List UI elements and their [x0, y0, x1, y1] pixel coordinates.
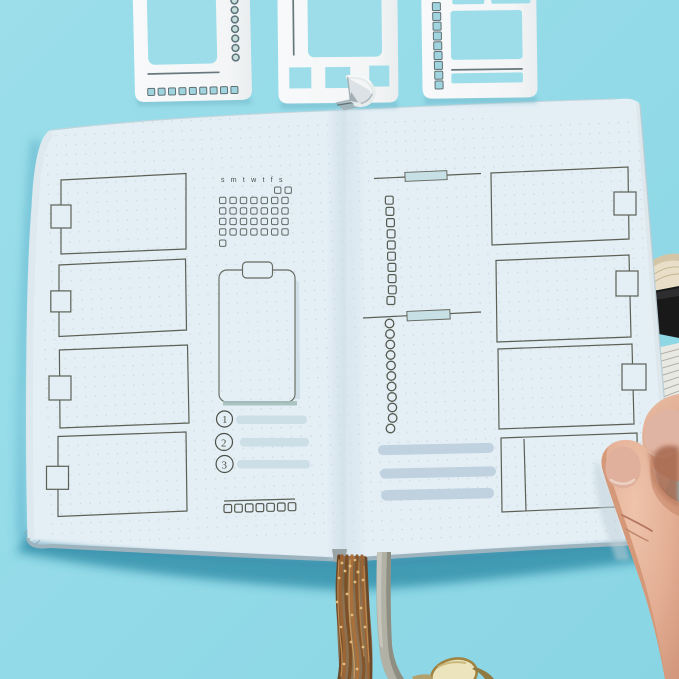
svg-text:2: 2: [221, 438, 227, 450]
svg-text:smtwtfs: smtwtfs: [221, 177, 289, 184]
svg-text:3: 3: [222, 460, 228, 472]
svg-text:1: 1: [222, 414, 228, 426]
